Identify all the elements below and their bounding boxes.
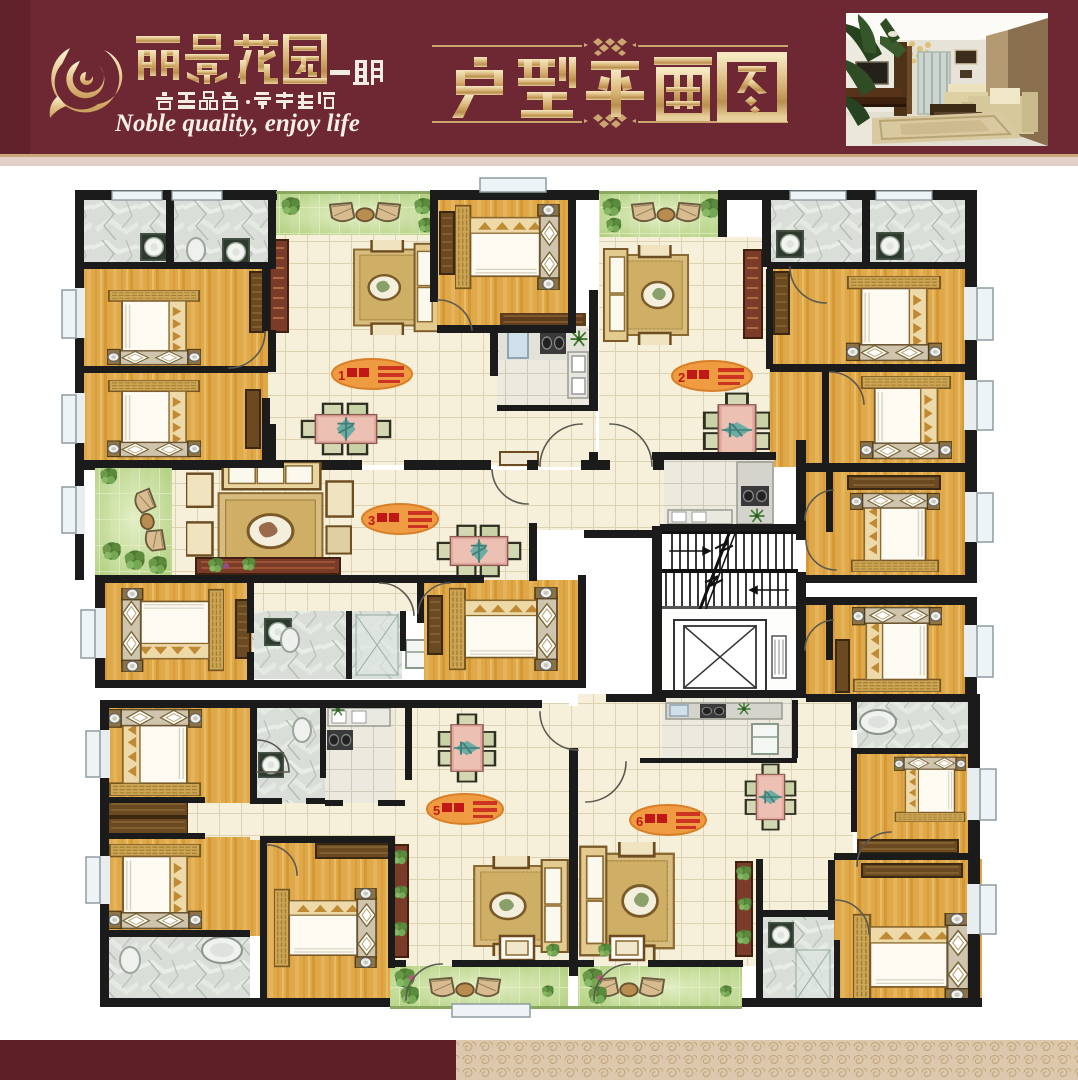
svg-text:5: 5: [433, 803, 440, 818]
svg-text:1: 1: [338, 368, 345, 383]
svg-text:3: 3: [368, 513, 375, 528]
svg-text:2: 2: [678, 370, 685, 385]
svg-text:6: 6: [636, 814, 643, 829]
svg-text:Noble quality, enjoy life: Noble quality, enjoy life: [114, 110, 360, 137]
